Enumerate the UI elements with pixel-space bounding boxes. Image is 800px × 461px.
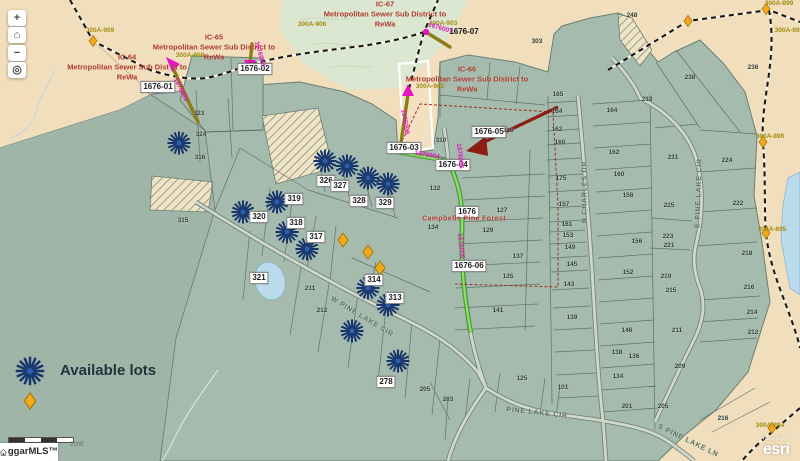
parcel-number: 139	[567, 315, 578, 322]
parcel-number: 101	[558, 385, 569, 392]
parcel-number: 225	[664, 203, 675, 210]
sewer-point-label: 1676-01	[140, 81, 175, 93]
esri-logo: esri	[763, 442, 789, 458]
boundary-id-label: 300A-902	[416, 84, 445, 91]
scale-label: 200ft	[70, 442, 83, 448]
parcel-number: 141	[493, 308, 504, 315]
sewer-line-id-label: 1676006	[455, 233, 464, 259]
boundary-id-label: 300A-894	[756, 423, 785, 430]
mls-watermark-text: ggarMLS™	[8, 447, 58, 457]
parcel-number: 160	[555, 140, 566, 147]
road-label: S PINE LAKE LN	[657, 423, 720, 458]
parcel-number: 211	[305, 286, 316, 293]
parcel-number: 211	[672, 328, 683, 335]
parcel-number: 132	[430, 186, 441, 193]
lot-label: 314	[364, 274, 383, 286]
sewer-point-label: 1676-07	[449, 28, 478, 36]
map-canvas[interactable]: IC-67Metropolitan Sewer Sub District toR…	[0, 0, 800, 461]
parcel-number: 216	[718, 416, 729, 423]
sewer-district-label-ic-64: IC-64Metropolitan Sewer Sub Dist ct toRe…	[67, 52, 187, 81]
lot-label: 320	[249, 211, 268, 223]
lot-label: 317	[306, 231, 325, 243]
parcel-number: 162	[609, 150, 620, 157]
parcel-number: 212	[317, 308, 328, 315]
lot-label: 328	[349, 195, 368, 207]
parcel-number: 145	[567, 262, 578, 269]
parcel-number: 212	[748, 330, 759, 337]
parcel-number: 310	[436, 138, 447, 145]
legend-available-lots-label: Available lots	[60, 363, 156, 378]
parcel-number: 224	[722, 158, 733, 165]
road-label: E PINE LAKE CIR	[694, 158, 703, 228]
parcel-number: 136	[629, 354, 640, 361]
subdivision-name-label: Campbells Pine Forest	[422, 216, 506, 223]
parcel-number: 138	[612, 350, 623, 357]
lot-label: 329	[375, 197, 394, 209]
lot-label: 278	[376, 376, 395, 388]
lot-label: 321	[249, 272, 268, 284]
parcel-number: 164	[552, 109, 563, 116]
parcel-number: 203	[443, 397, 454, 404]
parcel-number: 137	[513, 254, 524, 261]
esri-attribution: Powered by esri	[763, 437, 789, 458]
parcel-number: 143	[564, 282, 575, 289]
parcel-number: 160	[614, 172, 625, 179]
parcel-number: 165	[553, 92, 564, 99]
house-icon	[0, 446, 7, 459]
parcel-number: 157	[559, 202, 570, 209]
parcel-number: 223	[663, 234, 674, 241]
road-label: PINE LAKE CIR	[506, 406, 568, 419]
zoom-out-button[interactable]: −	[8, 45, 26, 61]
parcel-number: 161	[562, 222, 573, 229]
parcel-number: 149	[565, 245, 576, 252]
road-label: N CHARLES DR	[582, 161, 589, 224]
parcel-number: 127	[497, 208, 508, 215]
parcel-number: 162	[552, 127, 563, 134]
boundary-id-label: 300A-908	[176, 53, 205, 60]
parcel-number: 215	[666, 288, 677, 295]
parcel-number: 316	[195, 155, 206, 162]
parcel-number: 323	[194, 111, 205, 118]
parcel-number: 214	[747, 310, 758, 317]
parcel-number: 134	[613, 374, 624, 381]
parcel-number: 129	[483, 228, 494, 235]
parcel-number: 221	[664, 243, 675, 250]
parcel-number: 175	[556, 176, 567, 183]
zoom-in-button[interactable]: +	[8, 10, 26, 26]
scale-segment	[41, 438, 57, 442]
parcel-number: 219	[661, 274, 672, 281]
home-button[interactable]: ⌂	[8, 27, 26, 43]
boundary-id-label: 300A-909	[86, 28, 115, 35]
parcel-number: 218	[742, 251, 753, 258]
sewer-line-id-label: 1676004	[414, 151, 440, 161]
parcel-number: 158	[623, 193, 634, 200]
map-labels-layer: IC-67Metropolitan Sewer Sub District toR…	[0, 0, 800, 461]
parcel-number: 153	[563, 233, 574, 240]
sewer-point-label: 1676-02	[237, 63, 272, 75]
scale-segment	[9, 438, 25, 442]
parcel-number: 205	[420, 387, 431, 394]
lot-label: 327	[330, 180, 349, 192]
lot-label: 319	[284, 193, 303, 205]
boundary-id-label: 300A-895	[758, 227, 787, 234]
sewer-line-id-label: 1676005	[454, 143, 463, 169]
boundary-id-label: 300A-906	[298, 22, 327, 29]
parcel-number: 152	[623, 270, 634, 277]
parcel-number: 164	[607, 108, 618, 115]
parcel-number: 222	[733, 201, 744, 208]
sewer-point-label: 1676-05	[471, 126, 506, 138]
boundary-id-label: 300A-899	[765, 1, 794, 8]
sewer-line-id-label: 1676003	[399, 109, 410, 135]
parcel-number: 236	[748, 65, 759, 72]
parcel-number: 146	[622, 328, 633, 335]
lot-label: 313	[385, 292, 404, 304]
locate-button[interactable]: ◎	[8, 62, 26, 78]
parcel-number: 315	[503, 128, 514, 135]
parcel-number: 238	[685, 75, 696, 82]
parcel-number: 248	[627, 13, 638, 20]
parcel-number: 233	[642, 97, 653, 104]
parcel-number: 303	[532, 39, 543, 46]
scale-segment	[25, 438, 41, 442]
boundary-id-label: 300A-898	[775, 28, 800, 35]
parcel-number: 216	[744, 285, 755, 292]
parcel-number: 324	[196, 132, 207, 139]
lot-label: 318	[286, 217, 305, 229]
parcel-number: 201	[622, 404, 633, 411]
parcel-number: 205	[658, 404, 669, 411]
parcel-number: 135	[503, 274, 514, 281]
parcel-number: 315	[178, 218, 189, 225]
parcel-number: 231	[668, 155, 679, 162]
parcel-number: 134	[428, 225, 439, 232]
sewer-point-label: 1676-06	[451, 260, 486, 272]
sewer-point-label: 1676-04	[435, 159, 470, 171]
boundary-id-label: 300A-896	[756, 134, 785, 141]
parcel-number: 209	[675, 364, 686, 371]
parcel-number: 125	[517, 376, 528, 383]
mls-watermark: ggarMLS™	[0, 443, 58, 461]
parcel-number: 156	[632, 239, 643, 246]
